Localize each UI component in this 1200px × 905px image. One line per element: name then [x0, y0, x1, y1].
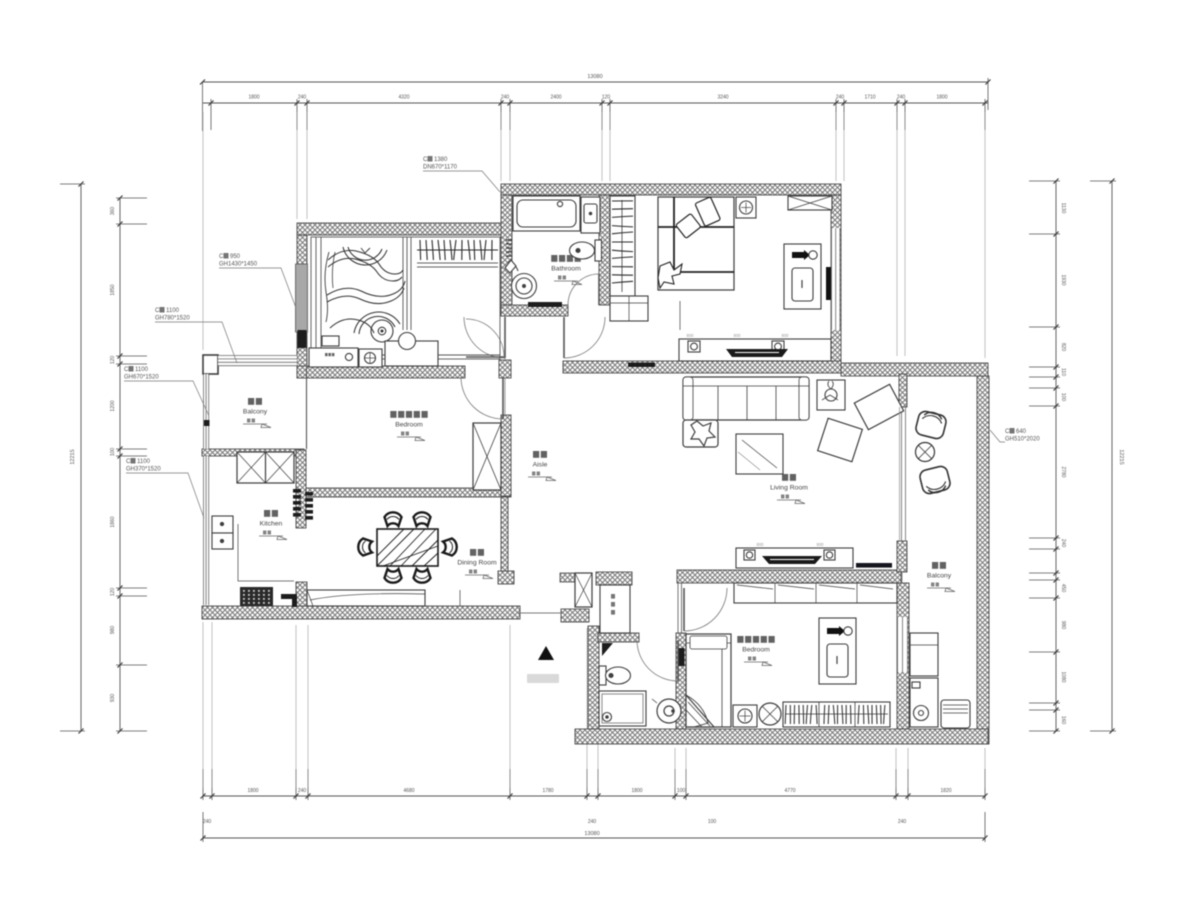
- svg-text:640: 640: [1016, 429, 1027, 435]
- svg-text:1130: 1130: [1060, 203, 1066, 214]
- svg-text:1100: 1100: [137, 459, 151, 465]
- svg-text:240: 240: [298, 788, 307, 794]
- svg-text:GH670*1520: GH670*1520: [124, 375, 159, 381]
- svg-text:C: C: [423, 157, 428, 163]
- svg-text:2780: 2780: [1060, 466, 1066, 477]
- svg-text:800: 800: [687, 333, 695, 338]
- svg-text:1800: 1800: [247, 788, 258, 794]
- svg-text:4770: 4770: [784, 788, 795, 794]
- svg-text:Living Room: Living Room: [770, 485, 808, 492]
- svg-text:240: 240: [298, 95, 307, 101]
- svg-text:Balcony: Balcony: [243, 409, 268, 416]
- svg-text:240: 240: [898, 819, 907, 825]
- svg-text:12215: 12215: [70, 449, 76, 464]
- svg-text:930: 930: [110, 694, 116, 703]
- svg-text:120: 120: [110, 588, 116, 597]
- svg-text:1080: 1080: [1060, 671, 1066, 682]
- svg-text:120: 120: [110, 356, 116, 365]
- svg-text:160: 160: [1060, 716, 1066, 725]
- svg-text:1930: 1930: [1060, 274, 1066, 285]
- svg-text:240: 240: [897, 95, 906, 101]
- svg-text:1860: 1860: [110, 516, 116, 527]
- svg-text:110: 110: [1060, 368, 1066, 376]
- svg-text:820: 820: [1060, 343, 1066, 352]
- svg-text:240: 240: [203, 819, 212, 825]
- svg-text:980: 980: [1060, 621, 1066, 630]
- svg-text:240: 240: [836, 95, 845, 101]
- svg-text:4320: 4320: [398, 95, 409, 101]
- svg-text:Kitchen: Kitchen: [260, 521, 283, 528]
- svg-text:C: C: [1005, 429, 1010, 435]
- svg-text:Aisle: Aisle: [533, 462, 548, 469]
- svg-text:240: 240: [588, 819, 597, 825]
- svg-text:Dining Room: Dining Room: [457, 560, 497, 567]
- svg-text:GH510*2020: GH510*2020: [1005, 437, 1040, 443]
- svg-text:1200: 1200: [110, 400, 116, 411]
- svg-text:950: 950: [230, 254, 241, 260]
- svg-text:980: 980: [110, 626, 116, 635]
- svg-text:Balcony: Balcony: [927, 573, 952, 580]
- svg-text:1780: 1780: [542, 788, 553, 794]
- svg-text:12215: 12215: [1118, 449, 1124, 464]
- svg-text:1800: 1800: [248, 95, 259, 101]
- svg-text:3240: 3240: [717, 95, 728, 101]
- svg-text:900: 900: [734, 333, 742, 338]
- svg-text:13080: 13080: [584, 831, 599, 837]
- svg-text:120: 120: [602, 95, 611, 101]
- svg-text:1100: 1100: [166, 308, 180, 314]
- svg-text:1800: 1800: [936, 95, 947, 101]
- svg-text:1100: 1100: [135, 367, 149, 373]
- svg-text:1710: 1710: [864, 95, 875, 101]
- svg-text:240: 240: [501, 95, 510, 101]
- svg-text:450: 450: [1060, 584, 1066, 593]
- svg-text:DN670*1170: DN670*1170: [423, 165, 458, 171]
- svg-text:Bedroom: Bedroom: [742, 647, 770, 654]
- svg-text:GH780*1520: GH780*1520: [155, 316, 190, 322]
- svg-text:100: 100: [677, 788, 686, 794]
- svg-text:1800: 1800: [631, 788, 642, 794]
- svg-text:Bedroom: Bedroom: [395, 422, 423, 429]
- svg-text:1380: 1380: [434, 157, 448, 163]
- svg-text:1820: 1820: [940, 788, 951, 794]
- svg-text:C: C: [219, 254, 224, 260]
- svg-text:100: 100: [110, 448, 116, 457]
- svg-text:Bathroom: Bathroom: [551, 266, 581, 273]
- svg-text:13080: 13080: [587, 74, 602, 80]
- svg-text:4680: 4680: [403, 788, 414, 794]
- svg-text:100: 100: [1060, 393, 1066, 402]
- svg-text:2400: 2400: [550, 95, 561, 101]
- svg-text:GH370*1520: GH370*1520: [126, 467, 161, 473]
- svg-text:100: 100: [708, 819, 717, 825]
- svg-text:900: 900: [817, 542, 825, 547]
- svg-text:C: C: [155, 308, 160, 314]
- svg-text:360: 360: [110, 207, 116, 216]
- svg-text:240: 240: [1060, 539, 1066, 548]
- svg-text:800: 800: [782, 333, 790, 338]
- svg-text:GH1430*1450: GH1430*1450: [219, 262, 258, 268]
- svg-text:C: C: [124, 367, 129, 373]
- svg-text:800: 800: [757, 542, 765, 547]
- svg-text:C: C: [126, 459, 131, 465]
- svg-text:1850: 1850: [110, 284, 116, 295]
